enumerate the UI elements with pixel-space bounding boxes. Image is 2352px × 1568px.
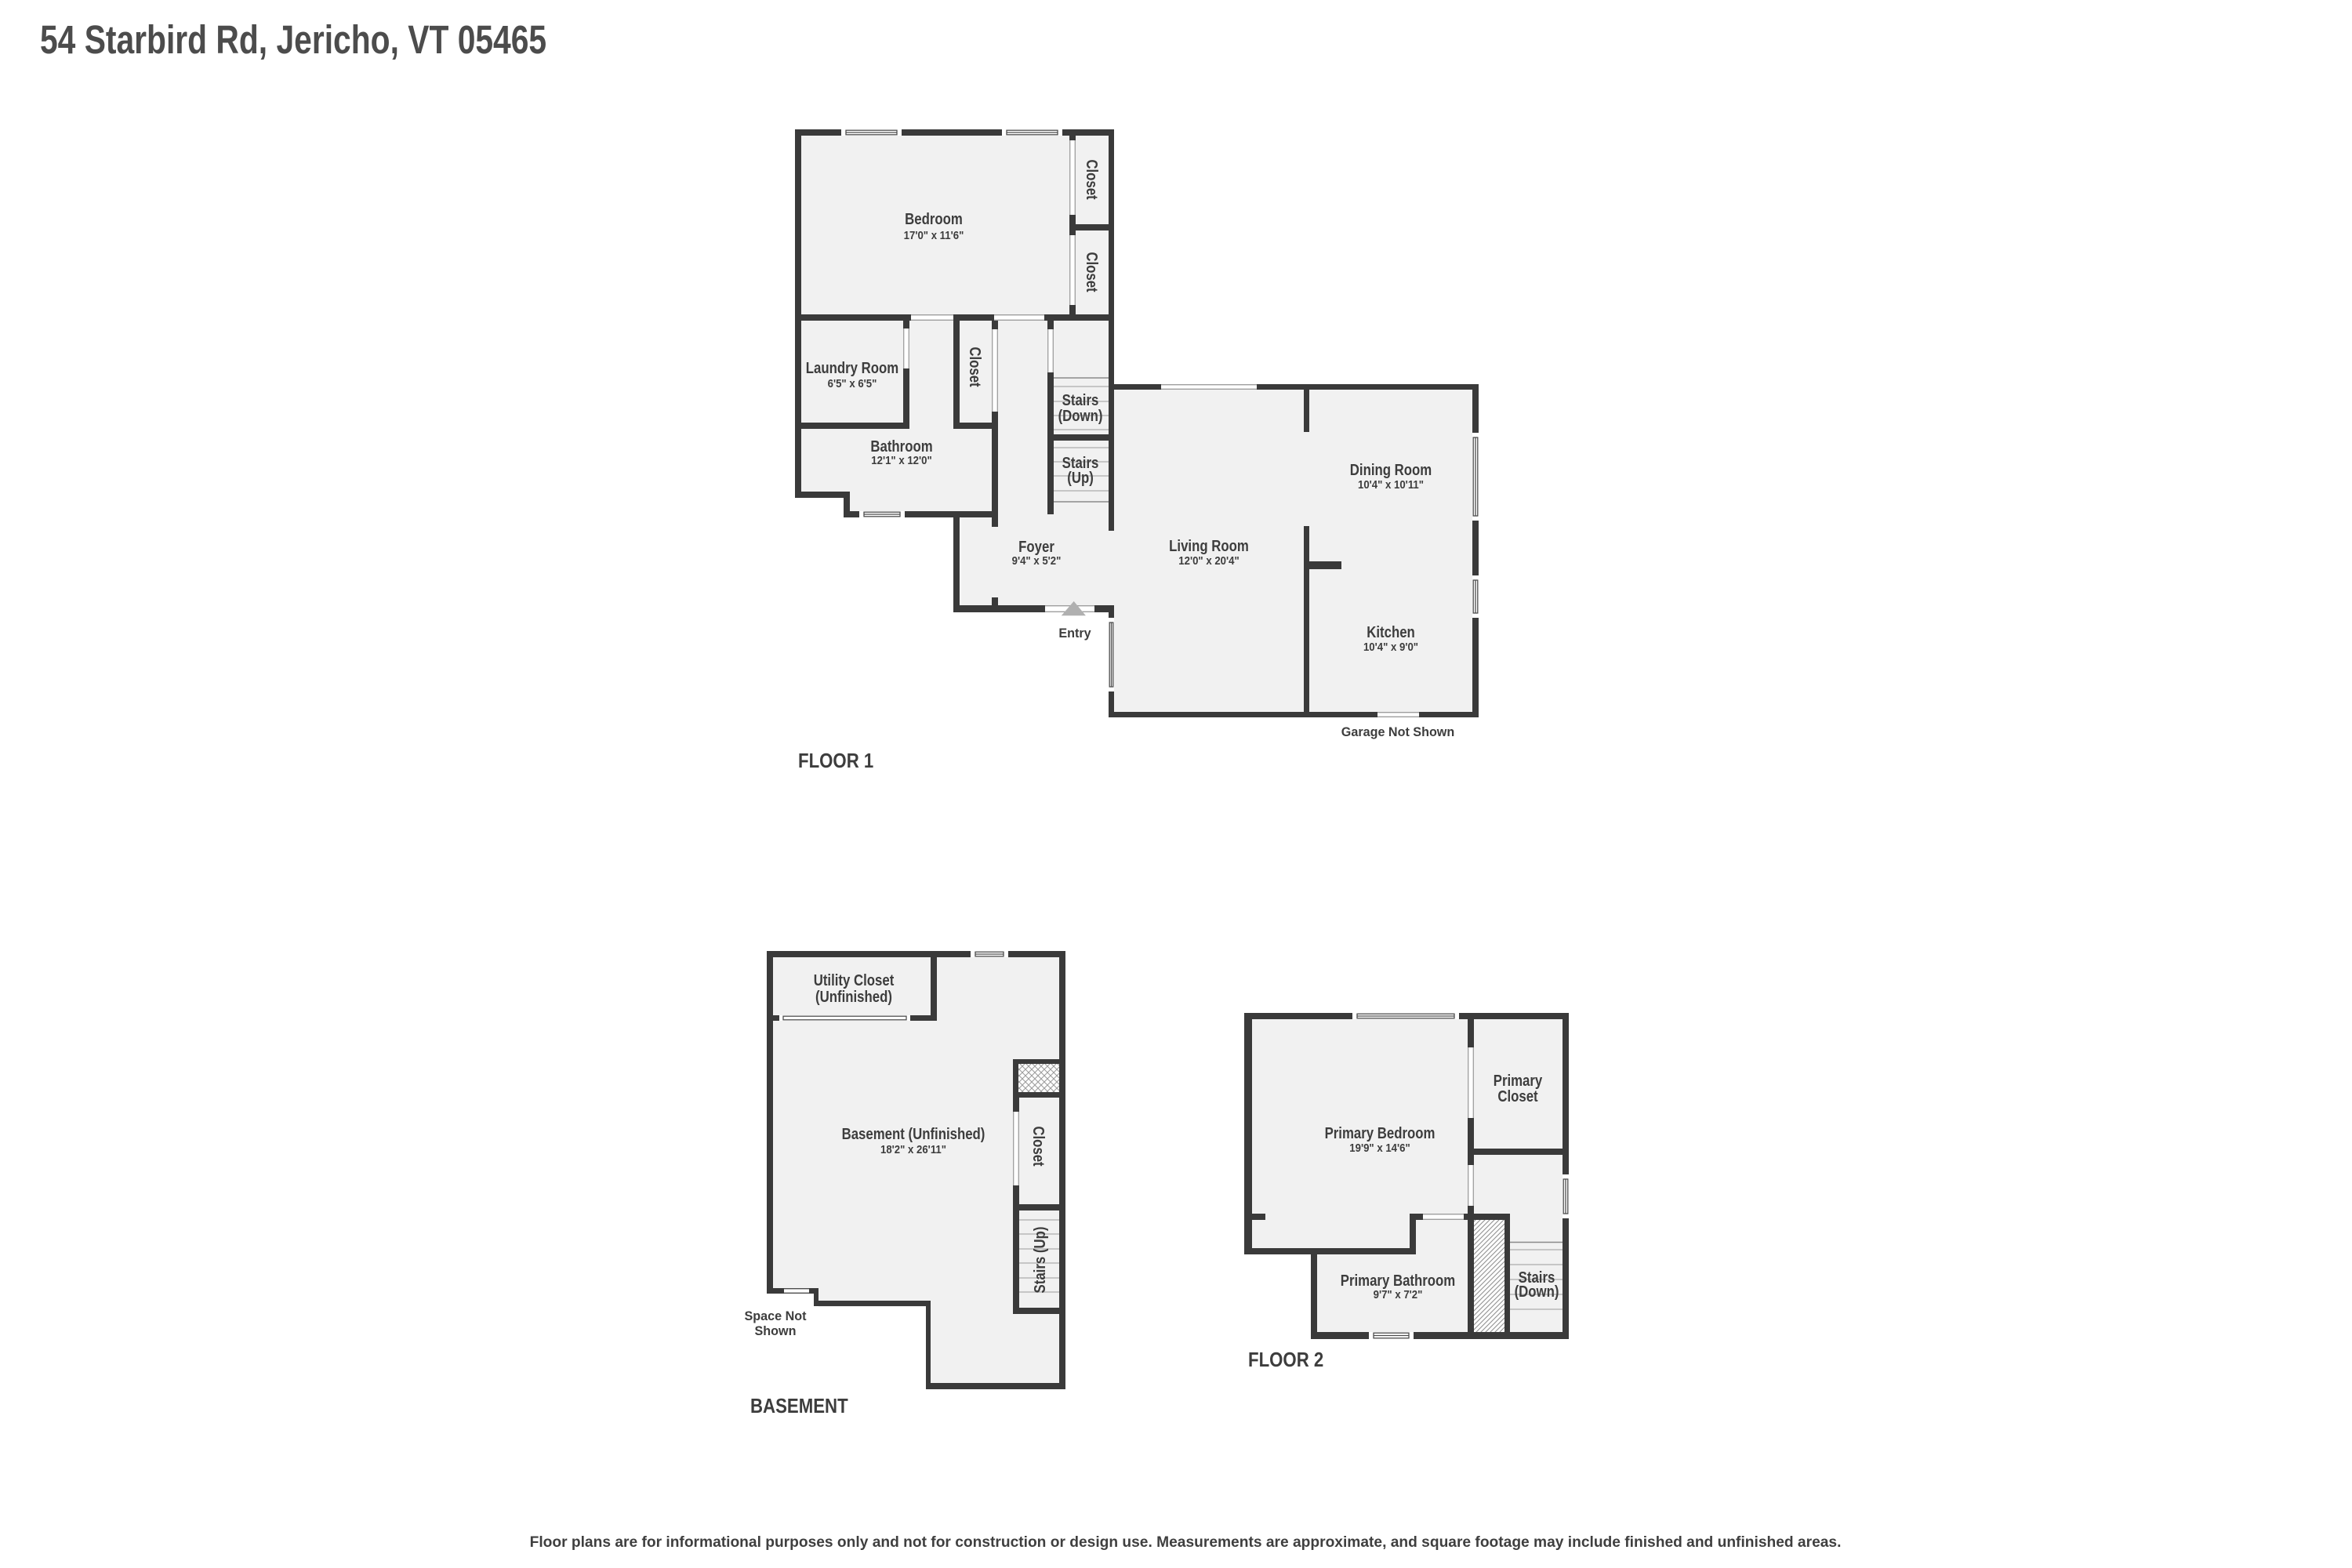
svg-text:Bedroom: Bedroom xyxy=(905,210,963,228)
svg-text:FLOOR 1: FLOOR 1 xyxy=(798,750,873,772)
svg-text:12'0" x 20'4": 12'0" x 20'4" xyxy=(1178,554,1239,567)
svg-text:Kitchen: Kitchen xyxy=(1367,623,1415,641)
svg-text:Laundry Room: Laundry Room xyxy=(806,359,898,377)
svg-text:9'7" x 7'2": 9'7" x 7'2" xyxy=(1374,1287,1423,1301)
svg-text:Closet: Closet xyxy=(967,347,985,387)
svg-text:(Down): (Down) xyxy=(1515,1283,1559,1301)
svg-text:6'5" x 6'5": 6'5" x 6'5" xyxy=(828,376,877,390)
svg-text:Stairs (Up): Stairs (Up) xyxy=(1031,1227,1049,1294)
svg-text:9'4" x 5'2": 9'4" x 5'2" xyxy=(1012,554,1062,567)
svg-text:FLOOR 2: FLOOR 2 xyxy=(1248,1348,1323,1371)
svg-text:Shown: Shown xyxy=(755,1323,797,1338)
svg-text:Basement (Unfinished): Basement (Unfinished) xyxy=(842,1125,985,1143)
svg-text:Closet: Closet xyxy=(1497,1087,1537,1105)
svg-text:54 Starbird Rd, Jericho, VT 05: 54 Starbird Rd, Jericho, VT 05465 xyxy=(40,17,546,62)
svg-text:Utility Closet: Utility Closet xyxy=(814,971,895,989)
svg-text:Space Not: Space Not xyxy=(745,1308,807,1323)
svg-text:Closet: Closet xyxy=(1083,159,1102,199)
svg-text:Closet: Closet xyxy=(1083,252,1102,292)
svg-text:18'2" x 26'11": 18'2" x 26'11" xyxy=(880,1142,946,1156)
svg-text:Entry: Entry xyxy=(1058,626,1091,641)
svg-text:19'9" x 14'6": 19'9" x 14'6" xyxy=(1349,1141,1410,1154)
svg-text:Foyer: Foyer xyxy=(1018,538,1054,556)
svg-text:(Down): (Down) xyxy=(1058,407,1103,425)
svg-text:17'0" x 11'6": 17'0" x 11'6" xyxy=(904,228,964,241)
svg-text:Closet: Closet xyxy=(1030,1126,1048,1166)
svg-text:12'1" x 12'0": 12'1" x 12'0" xyxy=(871,453,931,466)
svg-text:Living Room: Living Room xyxy=(1169,537,1249,555)
svg-text:Primary Bathroom: Primary Bathroom xyxy=(1341,1272,1455,1290)
svg-text:10'4" x 10'11": 10'4" x 10'11" xyxy=(1358,477,1424,491)
svg-text:(Unfinished): (Unfinished) xyxy=(815,988,892,1006)
svg-text:(Up): (Up) xyxy=(1067,469,1094,487)
svg-text:10'4" x 9'0": 10'4" x 9'0" xyxy=(1363,640,1418,653)
svg-text:Floor plans are for informatio: Floor plans are for informational purpos… xyxy=(530,1534,1842,1551)
svg-text:Bathroom: Bathroom xyxy=(870,437,932,456)
svg-text:BASEMENT: BASEMENT xyxy=(750,1395,848,1417)
svg-text:Dining Room: Dining Room xyxy=(1350,461,1432,479)
svg-text:Primary Bedroom: Primary Bedroom xyxy=(1325,1124,1436,1142)
svg-text:Garage Not Shown: Garage Not Shown xyxy=(1341,724,1454,739)
